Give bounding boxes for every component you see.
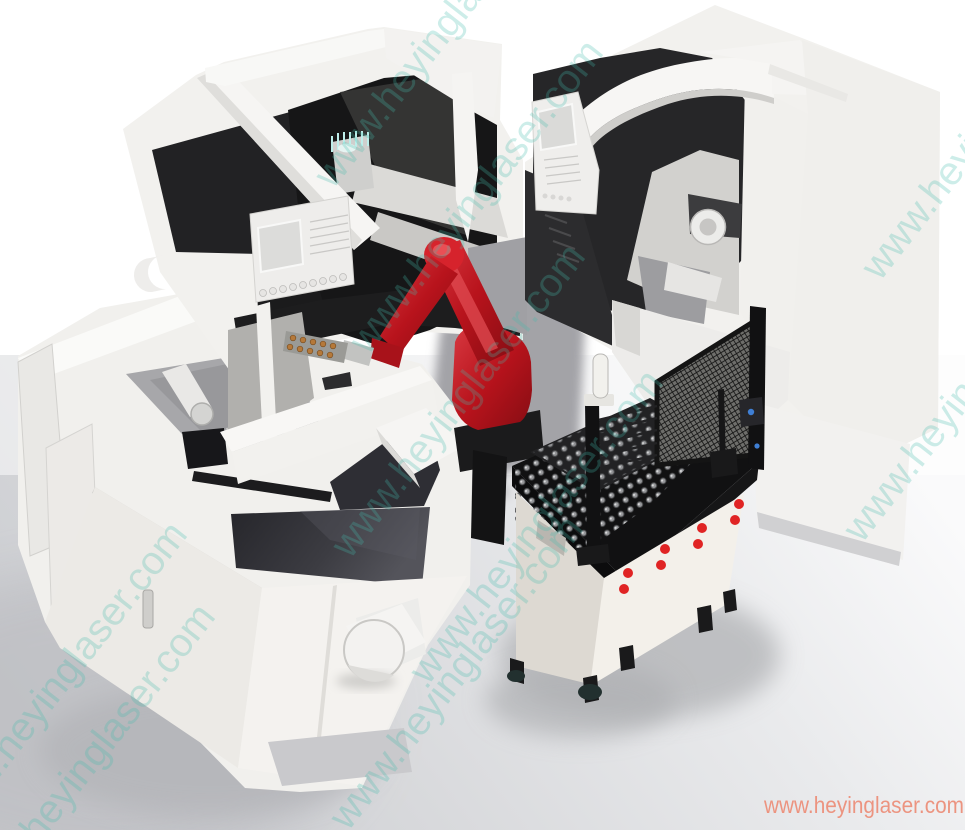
svg-text:www.heyinglaser.com: www.heyinglaser.com bbox=[763, 792, 964, 818]
